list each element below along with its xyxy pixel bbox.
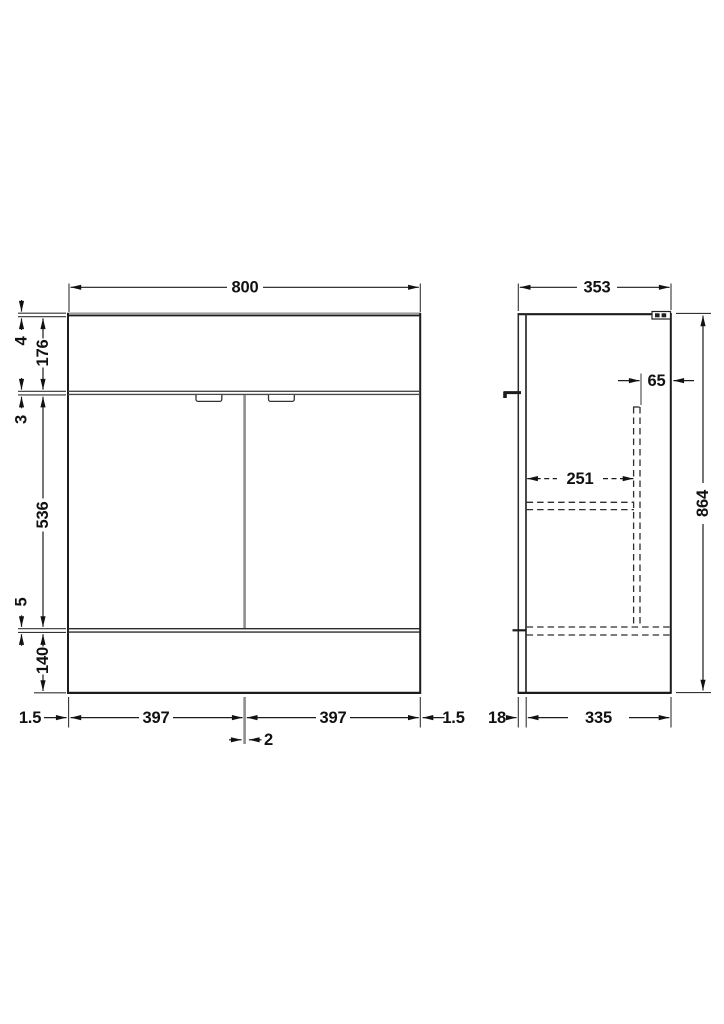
dim-top-gap: 3	[13, 415, 31, 424]
dim-worktop-band: 176	[34, 340, 52, 367]
front-view	[67, 313, 421, 694]
left-door-handle-recess	[196, 395, 222, 401]
wall-fixing-bracket-pad	[662, 313, 667, 317]
dim-bottom-gap: 5	[13, 597, 31, 606]
dim-door-height: 536	[34, 502, 52, 529]
dim-carcass-depth: 335	[585, 709, 612, 727]
wall-fixing-bracket	[652, 312, 671, 320]
dim-left-door-width: 397	[143, 709, 170, 727]
dim-right-door-width: 397	[320, 709, 347, 727]
side-handle-nub	[503, 392, 507, 398]
dim-plinth-height: 140	[34, 647, 52, 674]
technical-drawing-page: 800 4 176 3 536 5 140	[0, 0, 724, 1024]
vanity-dimension-drawing: 800 4 176 3 536 5 140	[0, 0, 724, 1024]
dim-service-gap: 65	[648, 372, 666, 390]
dim-front-width: 800	[232, 279, 259, 297]
front-view-dimensions: 800 4 176 3 536 5 140	[13, 279, 465, 749]
dim-top-lip: 4	[13, 335, 31, 345]
dim-side-height: 864	[694, 489, 712, 517]
side-view	[503, 312, 671, 694]
right-door-handle-recess	[269, 395, 295, 401]
dim-internal-depth: 251	[567, 470, 594, 488]
dim-side-depth: 353	[584, 279, 611, 297]
dim-edge-right: 1.5	[442, 709, 464, 727]
dim-edge-left: 1.5	[19, 709, 41, 727]
side-view-dimensions: 353 65 251 864 18 335	[488, 279, 712, 728]
dim-door-thickness: 18	[488, 709, 506, 727]
dim-door-gap: 2	[264, 731, 273, 749]
wall-fixing-bracket-pad	[655, 313, 660, 317]
